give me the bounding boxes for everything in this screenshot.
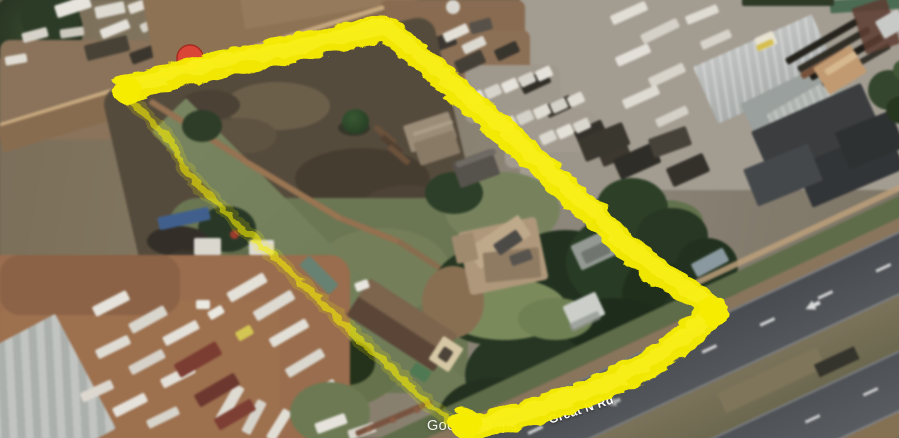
imagery-patch: [366, 426, 372, 432]
imagery-patch: [196, 300, 210, 309]
imagery-patch: [342, 109, 369, 134]
imagery-patch: [0, 255, 180, 315]
imagery-patch: [194, 238, 221, 255]
imagery-patch: [230, 230, 239, 239]
imagery-patch: [249, 240, 274, 255]
imagery-patch: [742, 0, 834, 6]
imagery-patch: [446, 0, 460, 14]
imagery-patch: [414, 407, 420, 413]
imagery-patch: [390, 417, 396, 423]
aerial-imagery: [0, 0, 899, 438]
imagery-patch: [182, 110, 222, 142]
map-view[interactable]: Google Maps Great N Rd: [0, 0, 899, 438]
location-marker[interactable]: [177, 45, 203, 71]
google-maps-watermark[interactable]: Google Maps: [427, 418, 518, 434]
